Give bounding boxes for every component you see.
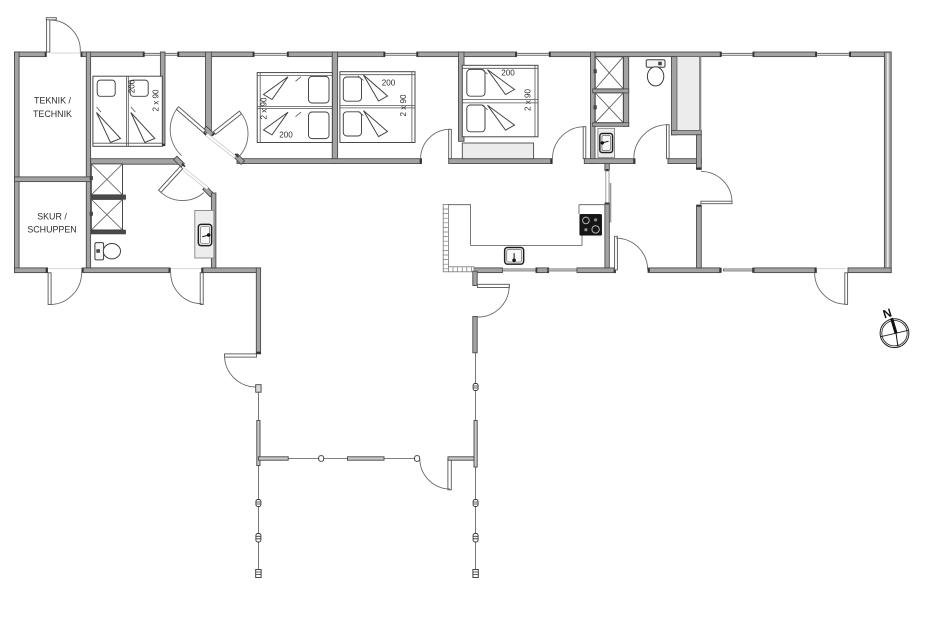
svg-text:2 x 90: 2 x 90 <box>524 88 533 111</box>
svg-text:2 x 90: 2 x 90 <box>399 94 408 117</box>
svg-text:2 x 90: 2 x 90 <box>152 89 161 112</box>
svg-text:2 x 90: 2 x 90 <box>260 97 269 120</box>
svg-text:200: 200 <box>501 69 515 78</box>
svg-text:200: 200 <box>279 130 293 139</box>
svg-text:TECHNIK: TECHNIK <box>33 109 72 119</box>
svg-text:SCHUPPEN: SCHUPPEN <box>27 225 76 235</box>
svg-text:200: 200 <box>128 79 137 93</box>
svg-text:SKUR /: SKUR / <box>37 212 67 222</box>
svg-text:TEKNIK /: TEKNIK / <box>34 96 72 106</box>
svg-text:200: 200 <box>382 79 396 88</box>
